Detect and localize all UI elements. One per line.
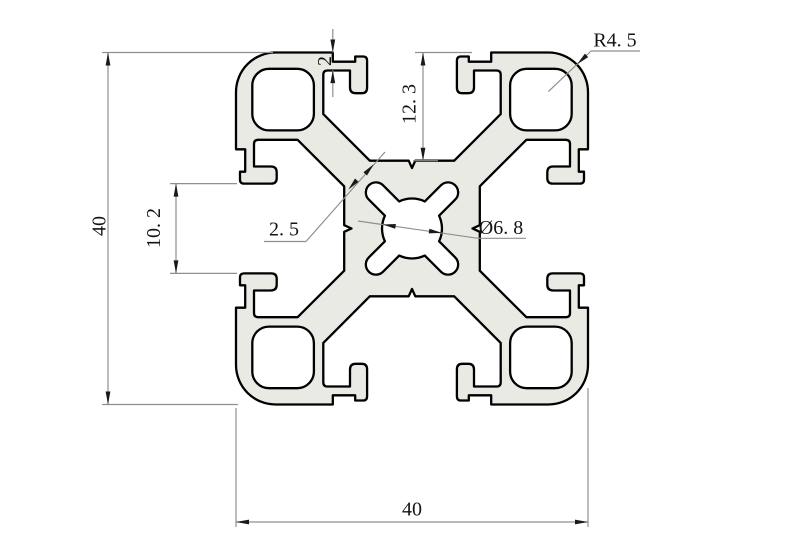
dimension-arrowhead [421, 53, 426, 66]
corner-hole-bottom-right [510, 327, 572, 389]
height-dimension-label: 40 [89, 216, 111, 236]
dimension-arrowhead [575, 520, 588, 525]
corner-radius-label: R4. 5 [593, 30, 636, 52]
width-dimension-label: 40 [402, 499, 422, 521]
dimension-arrowhead [174, 184, 179, 197]
dimension-arrowhead [174, 260, 179, 273]
slot-depth-label: 12. 3 [399, 84, 421, 124]
dimension-arrowhead [106, 392, 111, 405]
dimension-arrowhead [236, 520, 249, 525]
corner-hole-bottom-left [252, 327, 314, 389]
lip-thickness-label: 2 [314, 56, 336, 66]
center-hole-diameter-label: Ø6. 8 [479, 217, 523, 239]
profile-drawing: 40 40 2 12. 3 10. 2 2. 5 Ø6. 8 R4. 5 [0, 0, 804, 557]
slot-opening-label: 10. 2 [143, 208, 165, 248]
dimension-arrowhead [330, 40, 335, 53]
dimension-arrowhead [421, 148, 426, 161]
drawing-canvas: 40 40 2 12. 3 10. 2 2. 5 Ø6. 8 R4. 5 [0, 0, 804, 557]
dimension-arrowhead [106, 53, 111, 66]
dimension-arrowhead [330, 70, 335, 83]
wall-thickness-label: 2. 5 [269, 219, 299, 241]
corner-hole-top-left [252, 69, 314, 131]
